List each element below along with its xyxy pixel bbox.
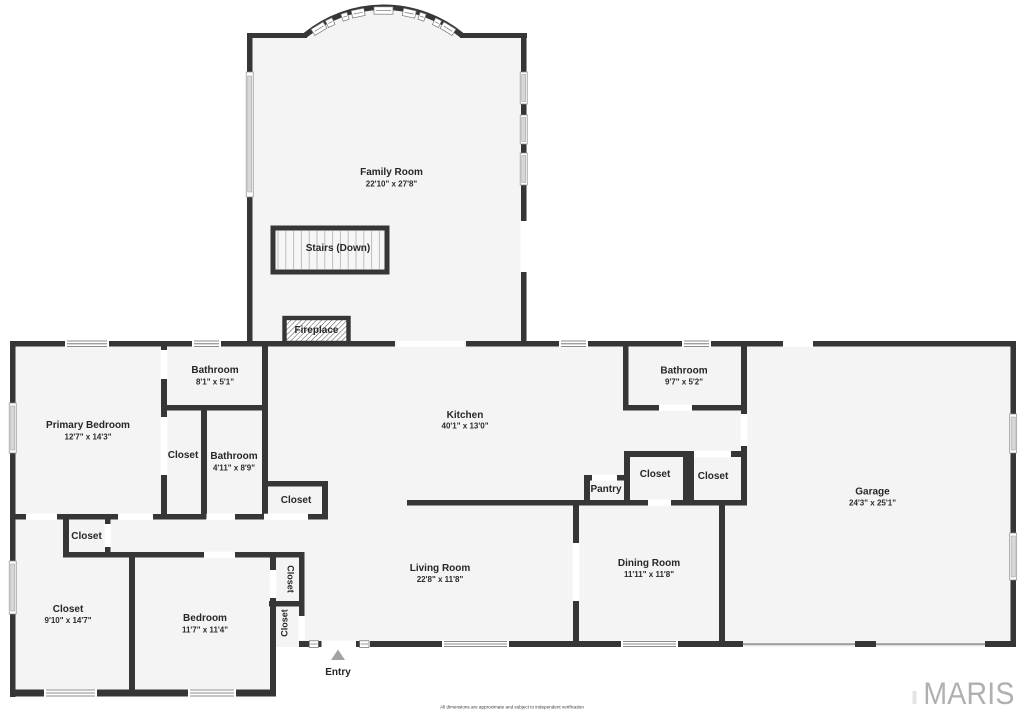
svg-text:9'7" x 5'2": 9'7" x 5'2"	[665, 378, 703, 387]
svg-text:4'11" x 8'9": 4'11" x 8'9"	[213, 464, 255, 473]
svg-text:Closet: Closet	[168, 450, 199, 461]
svg-text:Bathroom: Bathroom	[191, 365, 238, 376]
svg-text:8'1" x 5'1": 8'1" x 5'1"	[196, 378, 234, 387]
svg-text:Family Room: Family Room	[360, 167, 423, 178]
svg-text:Bathroom: Bathroom	[660, 366, 707, 377]
svg-text:Entry: Entry	[325, 667, 351, 678]
svg-text:Closet: Closet	[698, 471, 729, 482]
svg-text:Stairs (Down): Stairs (Down)	[306, 243, 370, 254]
svg-text:Primary Bedroom: Primary Bedroom	[46, 420, 130, 431]
svg-text:9'10" x 14'7": 9'10" x 14'7"	[45, 616, 92, 625]
svg-text:Fireplace: Fireplace	[295, 325, 339, 336]
svg-text:Pantry: Pantry	[590, 484, 622, 495]
svg-text:22'8" x 11'8": 22'8" x 11'8"	[417, 575, 464, 584]
svg-text:Closet: Closet	[281, 495, 312, 506]
svg-text:24'3" x 25'1": 24'3" x 25'1"	[849, 499, 896, 508]
svg-text:Bedroom: Bedroom	[183, 613, 227, 624]
svg-text:11'11" x 11'8": 11'11" x 11'8"	[624, 570, 674, 579]
svg-text:MARIS: MARIS	[923, 677, 1014, 712]
svg-text:Living Room: Living Room	[410, 563, 471, 574]
svg-text:Closet: Closet	[640, 469, 671, 480]
svg-text:12'7" x 14'3": 12'7" x 14'3"	[65, 433, 112, 442]
svg-text:Closet: Closet	[53, 604, 84, 615]
svg-text:Closet: Closet	[286, 565, 296, 593]
svg-text:Closet: Closet	[280, 609, 290, 637]
svg-text:Dining Room: Dining Room	[618, 558, 680, 569]
svg-text:22'10" x 27'8": 22'10" x 27'8"	[366, 180, 418, 189]
svg-text:Bathroom: Bathroom	[210, 451, 257, 462]
svg-text:All dimensions are approximate: All dimensions are approximate and subje…	[440, 705, 584, 710]
svg-text:Closet: Closet	[71, 531, 102, 542]
svg-text:Garage: Garage	[855, 487, 890, 498]
svg-text:11'7" x 11'4": 11'7" x 11'4"	[182, 626, 228, 635]
svg-text:40'1" x 13'0": 40'1" x 13'0"	[442, 422, 489, 431]
svg-text:Kitchen: Kitchen	[447, 410, 484, 421]
